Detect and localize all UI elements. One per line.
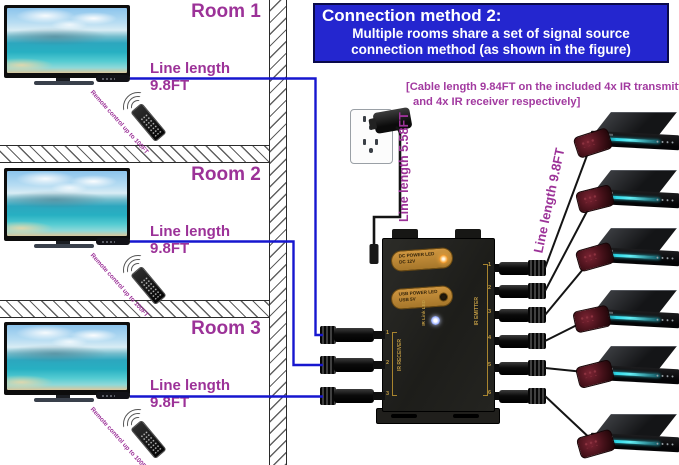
remote-buttons <box>140 276 162 300</box>
plug-body <box>334 358 374 372</box>
plug-body <box>499 362 530 375</box>
device-buttons <box>655 441 674 447</box>
cable-length-label: Line length 9.8FT <box>150 60 260 94</box>
plug-body <box>334 389 374 403</box>
plug-stub <box>373 331 385 339</box>
ir-link-led-label: IR Link LED <box>421 300 426 326</box>
ir-receiver-bar <box>96 392 130 399</box>
room-label: Room 2 <box>184 164 268 186</box>
ir-emitter-plug-2 <box>494 283 552 299</box>
room-1: Room 1 Line length 9.8FT Remote control … <box>0 0 350 160</box>
ir-receiver-plug-2 <box>320 356 386 374</box>
ir-link-led <box>431 316 440 325</box>
plug-stub <box>373 392 385 400</box>
ir-emitter-head-1 <box>572 127 613 159</box>
plug-ribbed-tip <box>528 333 546 349</box>
device-buttons <box>655 317 674 323</box>
plug-ribbed-tip <box>528 307 546 323</box>
dc-power-led-label-plate: DC POWER LED DC 12V <box>390 247 453 272</box>
title-line2: connection method (as shown in the figur… <box>315 42 667 58</box>
receiver-port-number: 1 <box>386 330 389 336</box>
cable-note-line1: [Cable length 9.84FT on the included 4x … <box>406 81 679 93</box>
tv-stand-base <box>34 244 94 248</box>
flange-slot <box>453 414 479 418</box>
device-buttons <box>655 373 674 379</box>
repeater-mount-tab <box>392 229 418 238</box>
emitter-port-number: 4 <box>488 335 491 341</box>
title-heading: Connection method 2: <box>322 6 667 26</box>
title-box: Connection method 2: Multiple rooms shar… <box>313 3 669 63</box>
ir-emitter-plug-3 <box>494 307 552 323</box>
emitter-port-number: 1 <box>488 262 491 268</box>
receiver-port-number: 3 <box>386 391 389 397</box>
title-line1: Multiple rooms share a set of signal sou… <box>315 26 667 42</box>
power-barrel-plug <box>370 244 379 264</box>
diagram-canvas: Room 1 Line length 9.8FT Remote control … <box>0 0 679 465</box>
emitter-side-label: IR EMITTER <box>474 297 480 325</box>
emitter-port-number: 6 <box>488 390 491 396</box>
ir-emitter-head-6 <box>576 428 617 459</box>
device-buttons <box>655 197 674 203</box>
outlet-ground-hole <box>369 148 373 153</box>
ir-receiver-plug-3 <box>320 387 386 405</box>
ir-emitter-plug-6 <box>494 388 552 404</box>
plug-ribbed-tip <box>528 283 546 299</box>
cable-length-label: Line length 9.8FT <box>150 377 260 411</box>
repeater-mount-tab <box>455 229 481 238</box>
ir-receiver-bar <box>96 75 130 82</box>
ir-emitter-plug-4 <box>494 333 552 349</box>
room-label: Room 3 <box>184 318 268 340</box>
tv-room3 <box>4 322 130 395</box>
room-label: Room 1 <box>184 1 268 23</box>
cable-note-line2: and 4x IR receiver respectively] <box>413 96 580 108</box>
remote-buttons <box>140 430 162 454</box>
plug-body <box>334 328 374 342</box>
plug-body <box>499 335 530 348</box>
outlet-slot <box>375 139 378 145</box>
tv-screen-beach <box>7 171 127 236</box>
power-cable-length-label: Line length 5.58FT <box>397 134 411 222</box>
ir-emitter-plug-5 <box>494 360 552 376</box>
emitter-port-bracket <box>483 264 488 396</box>
cable-length-label: Line length 9.8FT <box>150 223 260 257</box>
adapter-prong <box>368 118 377 130</box>
device-buttons <box>655 255 674 261</box>
plug-body <box>499 262 530 275</box>
emitter-port-number: 5 <box>488 362 491 368</box>
plug-stub <box>373 361 385 369</box>
emitter-cable-length-label: Line length 9.8FT <box>529 140 569 260</box>
tv-screen-beach <box>7 325 127 390</box>
ir-receiver-plug-1 <box>320 326 386 344</box>
room-3: Room 3 Line length 9.8FT Remote control … <box>0 317 350 465</box>
tv-room1 <box>4 5 130 78</box>
device-buttons <box>655 139 674 145</box>
outlet-slot <box>363 139 366 145</box>
receiver-port-number: 2 <box>386 360 389 366</box>
plug-ribbed-tip <box>528 360 546 376</box>
outlet-slot <box>363 116 366 122</box>
receiver-side-label: IR RECEIVER <box>397 339 403 371</box>
tv-stand-base <box>34 81 94 85</box>
ir-emitter-plug-1 <box>494 260 552 276</box>
tv-room2 <box>4 168 130 241</box>
tv-screen-beach <box>7 8 127 73</box>
tv-stand-base <box>34 398 94 402</box>
plug-body <box>499 285 530 298</box>
plug-ribbed-tip <box>528 260 546 276</box>
plug-ribbed-tip <box>528 388 546 404</box>
ir-receiver-bar <box>96 238 130 245</box>
plug-body <box>499 390 530 403</box>
plug-body <box>499 309 530 322</box>
remote-buttons <box>140 113 162 137</box>
flange-slot <box>391 414 417 418</box>
emitter-port-number: 3 <box>488 309 491 315</box>
emitter-port-number: 2 <box>488 285 491 291</box>
room-2: Room 2 Line length 9.8FT Remote control … <box>0 163 350 323</box>
